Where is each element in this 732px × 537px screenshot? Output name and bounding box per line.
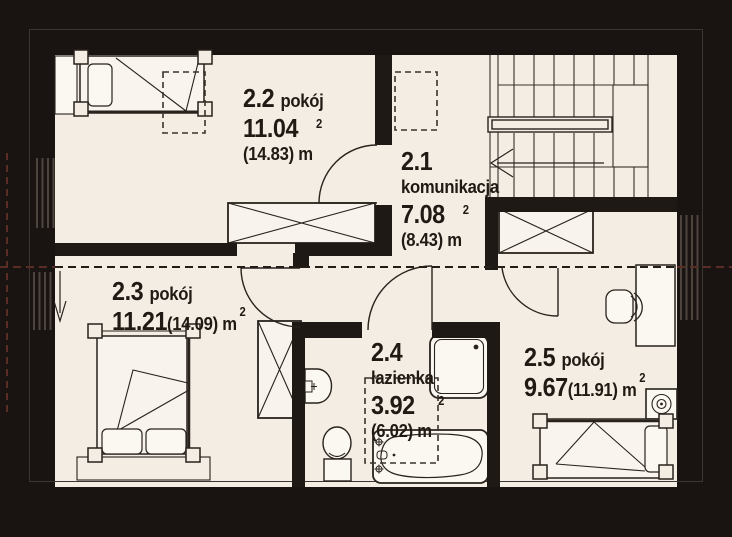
wall-2-2-2-3-east xyxy=(295,243,392,256)
room-label-2-4: 2.4 łazienka 3.922 (6.02) m xyxy=(371,337,444,442)
room-label-2-1: 2.1 komunikacja 7.082 (8.43) m xyxy=(401,146,499,251)
room-label-2-2: 2.2pokój 11.042 (14.83) m xyxy=(243,83,324,166)
wall-bathroom-west xyxy=(292,322,305,487)
stair-handrail xyxy=(488,117,612,132)
room-area-total: (14.83) m xyxy=(243,143,313,164)
room-id: 2.5 xyxy=(524,342,555,372)
wall-below-stairs xyxy=(490,197,677,212)
area-superscript: 2 xyxy=(316,117,322,131)
wall-2-2-2-3-west xyxy=(55,243,237,256)
room-area-total: (6.02) m xyxy=(371,420,432,441)
room-id: 2.4 xyxy=(371,337,402,367)
room-area: 9.67 xyxy=(524,372,568,402)
floor-plan: 2.2pokój 11.042 (14.83) m 2.1 komunikacj… xyxy=(0,0,732,537)
area-superscript: 2 xyxy=(639,371,645,385)
chimney-hatch-left-lower xyxy=(34,272,51,330)
chimney-hatch-left-upper xyxy=(37,158,54,228)
washbasin xyxy=(305,369,332,403)
room-type: łazienka xyxy=(371,367,434,388)
pillow-left xyxy=(102,429,142,454)
door-hinge-stub-2-3 xyxy=(293,253,309,268)
room-type: pokój xyxy=(149,283,192,304)
room-type: komunikacja xyxy=(401,176,499,197)
room-area: 11.04 xyxy=(243,113,298,143)
room-area: 7.08 xyxy=(401,199,445,229)
room-type: pokój xyxy=(561,349,604,370)
wardrobe-room-2-5 xyxy=(499,209,593,253)
double-bed-room-2-3 xyxy=(77,324,210,480)
room-id: 2.1 xyxy=(401,146,432,176)
wall-bathroom-north-east xyxy=(432,322,487,338)
shower-drain xyxy=(474,345,479,350)
wall-2-2-corridor-upper xyxy=(375,55,392,145)
room-label-2-5: 2.5pokój 9.67(11.91) m2 xyxy=(524,342,646,402)
room-id: 2.3 xyxy=(112,276,143,306)
area-superscript: 2 xyxy=(438,394,444,408)
toilet xyxy=(323,427,351,481)
wall-bathroom-east xyxy=(487,322,500,487)
room-area-total: (11.91) m xyxy=(568,379,637,400)
plan-linework xyxy=(0,0,732,537)
room-area: 11.21 xyxy=(112,306,167,336)
pillow xyxy=(88,64,112,106)
room-id: 2.2 xyxy=(243,83,274,113)
wall-bathroom-north-west xyxy=(292,322,362,338)
room-area-total: (14.09) m xyxy=(167,313,237,334)
area-superscript: 2 xyxy=(463,203,469,217)
room-area: 3.92 xyxy=(371,390,415,420)
room-type: pokój xyxy=(280,90,323,111)
wardrobe-room-2-2 xyxy=(228,203,375,243)
room-area-total: (8.43) m xyxy=(401,229,462,250)
area-superscript: 2 xyxy=(239,305,245,319)
single-bed-room-2-5 xyxy=(533,414,673,479)
room-label-2-3: 2.3pokój 11.21(14.09) m2 xyxy=(112,276,246,336)
pillow-right xyxy=(146,429,186,454)
